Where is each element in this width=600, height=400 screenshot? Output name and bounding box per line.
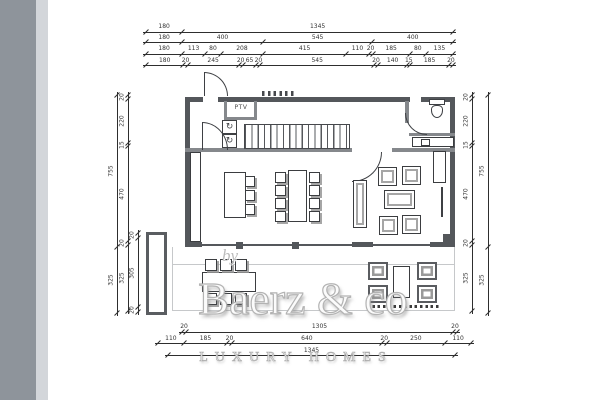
dim-label: 113 — [188, 45, 199, 52]
dim-label: 185 — [200, 335, 211, 342]
dim-label: 305 — [129, 267, 136, 278]
dim-label: 470 — [463, 188, 470, 199]
dim-label: 470 — [119, 188, 126, 199]
dim-label: 220 — [119, 116, 126, 127]
lounge-chair — [417, 285, 437, 303]
dim-label: 20 — [372, 57, 380, 64]
dim-label: 755 — [108, 165, 115, 176]
bar-stool — [245, 204, 255, 215]
dim-line — [155, 343, 474, 344]
dim-label: 220 — [463, 116, 470, 127]
dim-label: 185 — [424, 57, 435, 64]
dim-label: 640 — [301, 335, 312, 342]
tv-screen — [441, 187, 443, 217]
railing-dashes — [262, 91, 294, 96]
wc-door-arc — [405, 113, 427, 135]
dim-label: 180 — [158, 45, 169, 52]
dim-label: 20 — [180, 323, 188, 330]
dim-line — [488, 92, 489, 316]
dim-label: 185 — [385, 45, 396, 52]
dim-label: 20 — [451, 323, 459, 330]
dim-label: 180 — [159, 57, 170, 64]
dim-label: 20 — [182, 57, 190, 64]
dim-label: 325 — [479, 274, 486, 285]
entry-door-arc — [204, 72, 228, 96]
planter — [146, 232, 167, 315]
wall-top-mid — [218, 97, 410, 102]
washer-rotate-icon: ↻ — [226, 123, 234, 132]
armchair — [402, 166, 421, 185]
dim-label: 20 — [119, 240, 126, 248]
dim-label: 15 — [119, 141, 126, 149]
dim-label: 250 — [410, 335, 421, 342]
facade-post-2 — [292, 242, 299, 249]
dim-label: 20 — [463, 240, 470, 248]
dim-label: 325 — [108, 274, 115, 285]
sink — [421, 139, 430, 146]
dining-chair — [275, 185, 286, 196]
dining-chair — [309, 185, 320, 196]
dim-label: 545 — [311, 57, 322, 64]
armchair — [378, 167, 397, 186]
armchair — [379, 216, 398, 235]
dim-label: 180 — [158, 34, 169, 41]
dim-line — [179, 332, 460, 333]
wall-corner-br — [443, 234, 455, 247]
dining-chair — [309, 211, 320, 222]
dim-label: 20 — [237, 57, 245, 64]
washer: ↻ — [222, 120, 237, 134]
stairs — [244, 124, 350, 149]
dining-chair — [275, 172, 286, 183]
toilet-bowl — [431, 105, 443, 118]
wall-right — [450, 97, 455, 247]
background-strip-dark — [0, 0, 36, 400]
dim-label: 135 — [434, 45, 445, 52]
dim-line — [472, 92, 473, 314]
dim-line — [138, 230, 139, 315]
watermark-by: by — [222, 246, 238, 266]
dim-label: 140 — [387, 57, 398, 64]
hall-door-leaf — [202, 122, 203, 150]
dim-label: 20 — [119, 93, 126, 101]
dim-label: 15 — [463, 141, 470, 149]
floor-plan-page: PTV ↻ ↻ — [0, 0, 600, 400]
dim-label: 110 — [165, 335, 176, 342]
dining-chair — [309, 198, 320, 209]
coffee-table — [384, 190, 415, 209]
lounge-chair — [417, 262, 437, 280]
dim-label: 20 — [367, 45, 375, 52]
dim-line — [143, 42, 456, 43]
kitchen-island — [224, 172, 246, 218]
dining-chair — [275, 211, 286, 222]
dim-label: 20 — [255, 57, 263, 64]
dim-label: 20 — [129, 306, 136, 314]
kitchen-counter — [190, 152, 201, 242]
dim-label: 20 — [226, 335, 234, 342]
tv-cabinet — [433, 151, 446, 183]
bar-stool — [245, 176, 255, 187]
dining-chair — [275, 198, 286, 209]
dim-label: 245 — [207, 57, 218, 64]
dim-label: 325 — [463, 272, 470, 283]
dim-label: 400 — [407, 34, 418, 41]
dining-table — [288, 170, 307, 222]
dim-label: 20 — [380, 335, 388, 342]
wc-wall-bottom — [409, 133, 455, 136]
dim-label: 208 — [236, 45, 247, 52]
dining-chair — [309, 172, 320, 183]
watermark-brand: Baerz & co — [198, 272, 407, 325]
dim-label: 80 — [209, 45, 217, 52]
bar-stool — [245, 190, 255, 201]
terrace-line-right — [454, 247, 455, 311]
watermark-tagline: LUXURY HOMES — [199, 350, 393, 366]
dim-label: 110 — [452, 335, 463, 342]
dim-line — [128, 92, 129, 314]
dim-label: 755 — [479, 165, 486, 176]
dim-label: 65 — [246, 57, 254, 64]
dim-line — [143, 32, 456, 33]
dim-label: 110 — [352, 45, 363, 52]
sofa-bench — [353, 180, 367, 228]
dim-label: 545 — [312, 34, 323, 41]
dim-label: 180 — [158, 23, 169, 30]
armchair — [402, 215, 421, 234]
dim-label: 415 — [299, 45, 310, 52]
dim-label: 20 — [463, 93, 470, 101]
vanity-counter — [412, 137, 454, 147]
dim-label: 20 — [129, 231, 136, 239]
background-strip-light — [36, 0, 48, 400]
entry-door-leaf — [204, 72, 205, 96]
dim-label: 15 — [405, 57, 413, 64]
dim-label: 20 — [447, 57, 455, 64]
dim-label: 80 — [414, 45, 422, 52]
dim-label: 400 — [217, 34, 228, 41]
dim-label: 1345 — [310, 23, 325, 30]
outdoor-chair — [205, 259, 217, 271]
dim-label: 325 — [119, 272, 126, 283]
room-label-ptv: PTV — [228, 104, 254, 111]
wall-bottom-mid — [352, 242, 373, 247]
terrace-line-left — [172, 247, 173, 311]
